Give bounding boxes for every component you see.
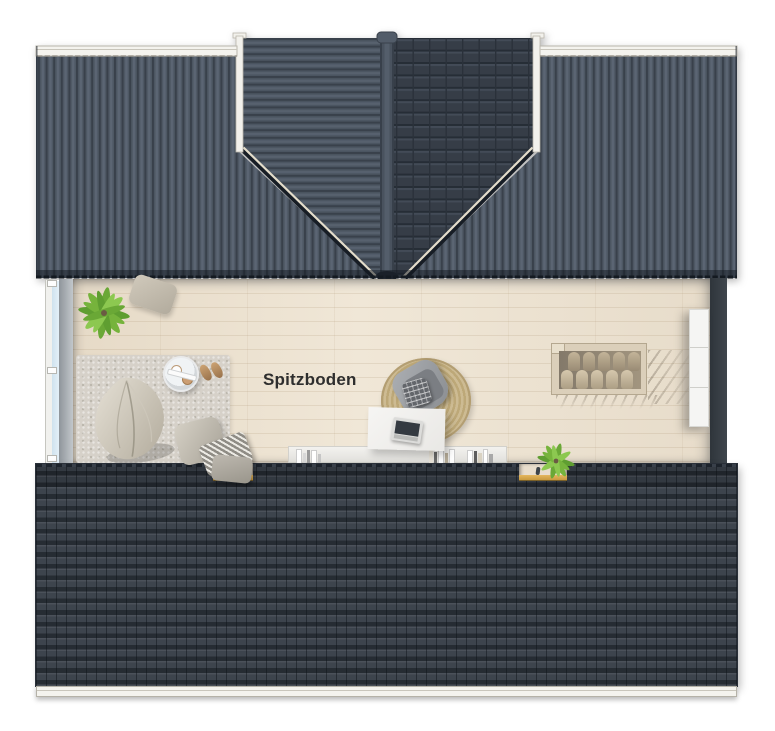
window-handle-bottom (47, 455, 57, 462)
room-label: Spitzboden (263, 370, 357, 390)
staircase-opening (551, 343, 647, 395)
stair-tread (628, 352, 640, 371)
book (467, 450, 473, 464)
book (489, 454, 493, 464)
book-group (467, 449, 493, 464)
barge-board-right (533, 36, 540, 152)
cabinet-divider (690, 387, 708, 388)
book (445, 453, 448, 464)
stair-tread (598, 352, 610, 371)
book (449, 449, 455, 464)
gutter-bottom (36, 686, 737, 697)
small-plant (534, 441, 578, 481)
stair-tread (568, 352, 580, 371)
stair-tread (583, 352, 595, 371)
right-gable-wall (710, 278, 727, 464)
top-roof (0, 0, 775, 282)
stair-tread (561, 370, 573, 389)
book (311, 450, 317, 464)
palm-plant (74, 285, 134, 341)
book (318, 454, 321, 464)
window-handle-middle (47, 367, 57, 374)
desk (367, 407, 445, 451)
cabinet-divider (690, 347, 708, 348)
book (296, 449, 302, 464)
book-group (296, 449, 321, 464)
stair-treads (559, 351, 641, 389)
railing-shadow (556, 395, 660, 409)
book (307, 450, 310, 464)
ridge-cap (377, 32, 397, 43)
left-gable-wall (59, 279, 73, 464)
attic-floorplan: Spitzboden (0, 0, 775, 731)
book (303, 453, 306, 464)
stair-tread (606, 370, 618, 389)
book (474, 451, 477, 464)
gutter-top-right (540, 46, 737, 56)
ridge-highlight (385, 38, 390, 278)
tall-cabinet (689, 309, 709, 427)
book (483, 449, 488, 464)
bottom-roof (36, 464, 737, 686)
book (429, 450, 433, 464)
gutter-top-left (36, 46, 237, 56)
side-table (163, 356, 199, 392)
stair-tread (576, 370, 588, 389)
window-handle-top (47, 280, 57, 287)
floor-pillow (211, 454, 253, 484)
stair-tread (591, 370, 603, 389)
book (434, 452, 437, 464)
stair-tread (621, 370, 633, 389)
stair-tread (613, 352, 625, 371)
book (478, 453, 482, 464)
laptop (390, 417, 423, 444)
